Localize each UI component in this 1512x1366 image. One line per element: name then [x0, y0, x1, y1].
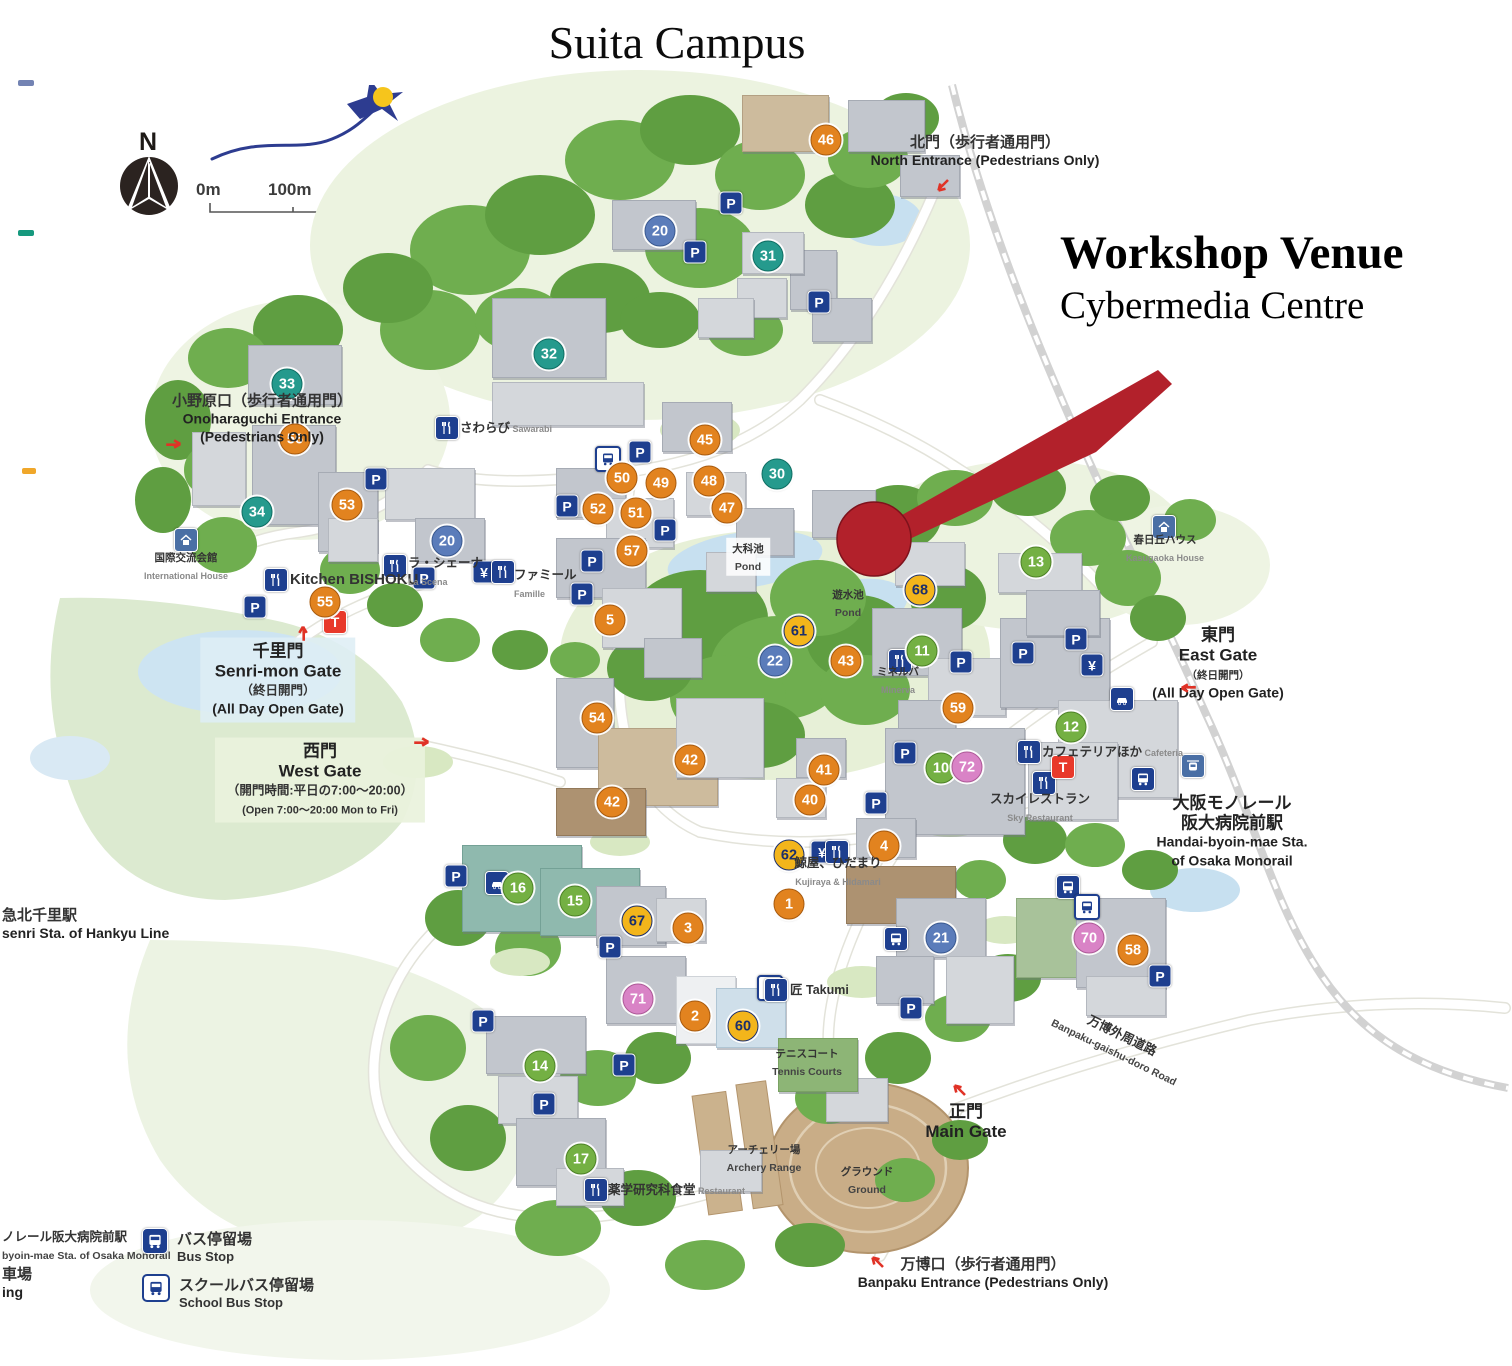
parking-icon: P [365, 468, 388, 491]
parking-icon: P [1012, 642, 1035, 665]
map-marker-72: 72 [952, 752, 983, 783]
gate-senrimon: 千里門Senri-mon Gate（終日開門）(All Day Open Gat… [200, 638, 355, 723]
map-marker-42: 42 [675, 745, 706, 776]
map-marker-42: 42 [597, 787, 628, 818]
restaurant-pharm: 薬学研究科食堂 Restaurant [608, 1181, 745, 1199]
gate-arrow-banpaku [867, 1252, 887, 1272]
building [644, 638, 702, 678]
map-marker-70: 70 [1074, 923, 1105, 954]
restaurant-takumi: 匠 Takumi [790, 981, 849, 999]
campus-map-page: PPPPPPPPPPPPPPPPPPPPPPP¥¥¥TT462031323356… [0, 0, 1512, 1366]
building [698, 298, 754, 338]
restaurant-icon [264, 568, 288, 592]
parking-icon: P [445, 865, 468, 888]
map-marker-46: 46 [811, 125, 842, 156]
school-bus-stop-icon [142, 1274, 170, 1302]
tennis-courts: テニスコートTennis Courts [772, 1044, 842, 1080]
tree-cluster [1065, 823, 1125, 867]
map-marker-16: 16 [503, 873, 534, 904]
monorail-station-icon [1181, 754, 1205, 778]
edge-dash [18, 80, 34, 86]
legend-bus-en: Bus Stop [177, 1249, 252, 1264]
legend-bus-stop: バス停留場 Bus Stop [142, 1228, 314, 1264]
intl-house: 国際交流会館International House [144, 548, 228, 584]
pond-yusui: 遊水池Pond [832, 585, 864, 621]
map-marker-68: 68 [905, 575, 936, 606]
map-marker-52: 52 [583, 494, 614, 525]
parking-icon: P [581, 550, 604, 573]
map-marker-2: 2 [680, 1001, 711, 1032]
building [385, 468, 475, 520]
map-marker-50: 50 [607, 463, 638, 494]
map-marker-14: 14 [525, 1051, 556, 1082]
tree-cluster [954, 860, 1006, 900]
parking-icon: P [684, 241, 707, 264]
map-marker-51: 51 [621, 498, 652, 529]
tree-cluster [917, 470, 993, 526]
tree-cluster [515, 1200, 601, 1256]
map-marker-47: 47 [712, 493, 743, 524]
parking-icon: P [865, 792, 888, 815]
tree-cluster [665, 1240, 745, 1290]
legend: バス停留場 Bus Stop スクールバス停留場 School Bus Stop [142, 1228, 314, 1320]
parking-icon: P [533, 1093, 556, 1116]
gate-onoharaguchi: 小野原口（歩行者通用門）Onoharaguchi Entrance(Pedest… [172, 393, 352, 448]
map-marker-41: 41 [809, 755, 840, 786]
parking-icon: P [556, 495, 579, 518]
tree-cluster [492, 630, 548, 670]
map-marker-49: 49 [646, 468, 677, 499]
map-marker-21: 21 [926, 923, 957, 954]
parking-icon: P [950, 651, 973, 674]
map-marker-12: 12 [1056, 712, 1087, 743]
tree-cluster [430, 1105, 506, 1171]
map-marker-5: 5 [595, 605, 626, 636]
tree-cluster [343, 253, 433, 323]
map-marker-40: 40 [795, 785, 826, 816]
edge-dash [18, 230, 34, 236]
map-marker-60: 60 [728, 1011, 759, 1042]
parking-icon: P [472, 1010, 495, 1033]
map-marker-31: 31 [753, 241, 784, 272]
bus-stop-icon [884, 927, 908, 951]
building [328, 518, 378, 562]
map-marker-1: 1 [774, 889, 805, 920]
restaurant-icon [764, 978, 788, 1002]
map-marker-53: 53 [332, 490, 363, 521]
map-marker-71: 71 [623, 984, 654, 1015]
restaurant-icon [1017, 740, 1041, 764]
legend-bus-jp: バス停留場 [177, 1228, 252, 1249]
tree-cluster [1090, 475, 1150, 521]
tree-cluster [390, 1015, 466, 1081]
map-marker-57: 57 [617, 536, 648, 567]
map-marker-3: 3 [673, 913, 704, 944]
map-marker-43: 43 [831, 646, 862, 677]
building [946, 956, 1014, 1024]
map-marker-48: 48 [694, 466, 725, 497]
school-bus-stop-icon [1074, 894, 1100, 920]
restaurant-sky: スカイレストランSky Restaurant [990, 790, 1090, 826]
parking-icon: P [808, 291, 831, 314]
atm-icon: ¥ [1081, 654, 1104, 677]
edge-dash [22, 468, 36, 474]
gate-main: 正門Main Gate [925, 1102, 1006, 1142]
gate-north: 北門（歩行者通用門）North Entrance (Pedestrians On… [871, 134, 1100, 170]
tree-cluster [550, 642, 600, 678]
tree-cluster [865, 1032, 931, 1084]
tree-cluster [775, 1223, 845, 1267]
legend-school-en: School Bus Stop [179, 1295, 314, 1310]
map-marker-54: 54 [582, 703, 613, 734]
parking-icon: P [613, 1054, 636, 1077]
gate-east: 東門East Gate（終日開門）(All Day Open Gate) [1152, 626, 1283, 703]
restaurant-icon [491, 560, 515, 584]
restaurant-icon [435, 416, 459, 440]
tree-cluster [990, 460, 1066, 516]
tree-cluster [620, 292, 700, 348]
parking-cut: 車場ing [2, 1266, 32, 1302]
restaurant-famille: ファミールFamille [514, 566, 577, 602]
ground: グラウンドGround [841, 1162, 894, 1198]
restaurant-cafeteria: カフェテリアほか Cafeteria [1042, 743, 1183, 761]
gate-arrow-main [949, 1080, 969, 1100]
map-marker-55: 55 [310, 587, 341, 618]
lawn-patch [490, 948, 550, 976]
gate-banpaku: 万博口（歩行者通用門）Banpaku Entrance (Pedestrians… [858, 1256, 1109, 1292]
restaurant-sawarabi: さわらび Sawarabi [460, 419, 552, 437]
parking-icon: P [599, 936, 622, 959]
parking-icon: P [894, 742, 917, 765]
tree-cluster [135, 467, 191, 533]
kasugaoka-house: 春日丘ハウスKasugaoka House [1126, 530, 1204, 566]
parking-icon: P [629, 441, 652, 464]
restaurant-icon [584, 1178, 608, 1202]
bus-stop-icon [1131, 767, 1155, 791]
parking-icon: P [244, 596, 267, 619]
parking-icon: P [900, 997, 923, 1020]
map-marker-45: 45 [690, 425, 721, 456]
building [812, 490, 876, 538]
gate-west: 西門West Gate（開門時間:平日の7:00～20:00）(Open 7:0… [215, 738, 425, 823]
tree-cluster [420, 618, 480, 662]
car-icon [1110, 687, 1134, 711]
pond-taika: 大科池Pond [726, 538, 770, 576]
map-marker-17: 17 [566, 1144, 597, 1175]
parking-icon: P [720, 192, 743, 215]
map-marker-13: 13 [1021, 547, 1052, 578]
station-hankyu-cut: 急北千里駅senri Sta. of Hankyu Line [2, 907, 169, 943]
archery-range: アーチェリー場Archery Range [727, 1140, 802, 1176]
map-marker-20: 20 [645, 216, 676, 247]
map-marker-59: 59 [943, 693, 974, 724]
station-monorail: 大阪モノレール阪大病院前駅Handai-byoin-mae Sta.of Osa… [1157, 794, 1308, 871]
parking-icon: P [654, 519, 677, 542]
building [1026, 590, 1100, 636]
map-marker-15: 15 [560, 886, 591, 917]
legend-school-bus-stop: スクールバス停留場 School Bus Stop [142, 1274, 314, 1310]
map-marker-34: 34 [242, 497, 273, 528]
map-marker-20: 20 [432, 526, 463, 557]
parking-icon: P [1065, 628, 1088, 651]
parking-icon: P [1149, 965, 1172, 988]
restaurant-bishoku: Kitchen BISHOKU [290, 571, 418, 589]
map-marker-61: 61 [784, 616, 815, 647]
gate-arrow-north [933, 176, 953, 196]
bus-stop-icon [142, 1228, 168, 1254]
map-marker-32: 32 [534, 339, 565, 370]
restaurant-kujiraya: 鯨屋、ひだまりKujiraya & Hidamari [794, 854, 881, 890]
legend-school-jp: スクールバス停留場 [179, 1274, 314, 1295]
map-marker-67: 67 [622, 906, 653, 937]
restaurant-lascena: ラ・シェーナLa Scena [408, 554, 483, 590]
map-marker-22: 22 [760, 646, 791, 677]
map-marker-30: 30 [762, 459, 793, 490]
map-overlay: PPPPPPPPPPPPPPPPPPPPPPP¥¥¥TT462031323356… [0, 0, 1512, 1366]
restaurant-minerva: ミネルバMinerva [877, 662, 919, 698]
map-marker-58: 58 [1118, 935, 1149, 966]
